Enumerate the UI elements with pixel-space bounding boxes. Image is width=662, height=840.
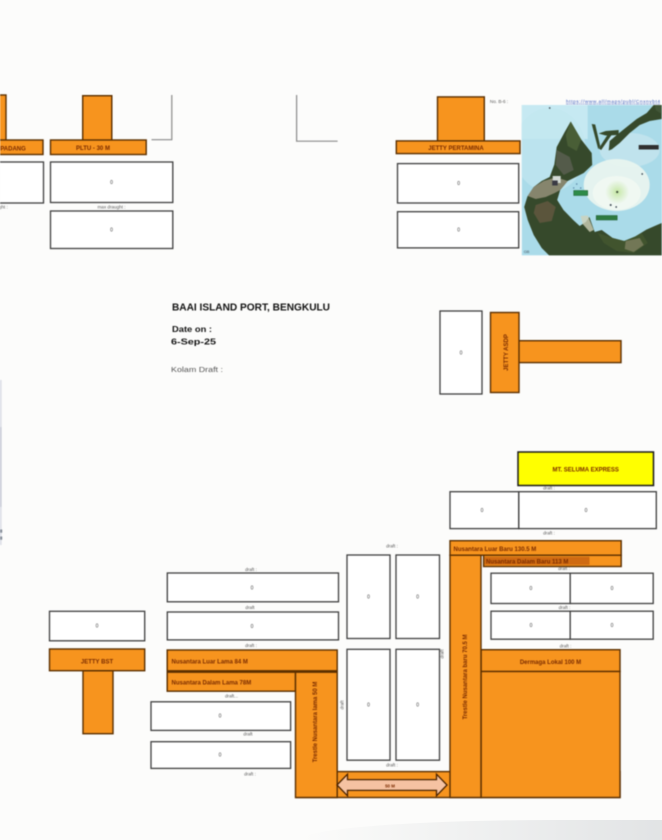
svg-text:No. B-6 :: No. B-6 :	[490, 99, 508, 104]
svg-text:0: 0	[611, 623, 614, 629]
svg-text:Dermaga Lokal 100 M: Dermaga Lokal 100 M	[520, 660, 581, 666]
svg-text:0: 0	[96, 624, 99, 630]
svg-text:0: 0	[460, 351, 463, 357]
svg-text:BAAI ISLAND PORT, BENGKULU: BAAI ISLAND PORT, BENGKULU	[172, 303, 330, 314]
svg-text:0: 0	[219, 714, 222, 720]
svg-text:50 M: 50 M	[385, 783, 395, 788]
svg-text:Kolam Draft :: Kolam Draft :	[171, 367, 223, 374]
svg-text:Nusantara Dalam Baru 113 M: Nusantara Dalam Baru 113 M	[486, 560, 568, 566]
svg-text:draft :: draft :	[245, 643, 257, 648]
svg-text:0: 0	[457, 181, 460, 187]
svg-text:0: 0	[110, 180, 113, 186]
svg-text:https://www.all/maps/publ/Cnxn: https://www.all/maps/publ/Cnxnvbt4	[566, 99, 660, 105]
svg-text:draft: draft	[440, 649, 445, 659]
svg-text:GB: GB	[524, 249, 530, 254]
svg-text:draft :: draft :	[386, 544, 398, 549]
svg-text:0: 0	[611, 586, 614, 592]
svg-text:draft :: draft :	[386, 763, 398, 768]
svg-text:draft: draft	[243, 732, 253, 737]
svg-text:draft: draft	[245, 605, 255, 610]
svg-text:0: 0	[481, 508, 484, 514]
svg-text:Nusantara Luar Baru 130.5 M: Nusantara Luar Baru 130.5 M	[454, 547, 537, 553]
svg-text:Trestle Nusantara lama 50 M: Trestle Nusantara lama 50 M	[313, 682, 319, 763]
svg-text:draft :: draft :	[543, 485, 555, 490]
svg-text:max draught :: max draught :	[97, 205, 125, 210]
svg-text:0: 0	[367, 703, 370, 709]
svg-text:MT. SELUMA EXPRESS: MT. SELUMA EXPRESS	[552, 467, 618, 473]
svg-text:draft :: draft :	[245, 567, 257, 572]
svg-text:Trestle Nusantara baru 70.5 M: Trestle Nusantara baru 70.5 M	[463, 634, 469, 719]
svg-text:JETTY PERTAMINA: JETTY PERTAMINA	[428, 146, 484, 152]
svg-text:0: 0	[110, 228, 113, 234]
svg-text:0: 0	[585, 508, 588, 514]
svg-text:draft :: draft :	[543, 531, 555, 536]
svg-text:0: 0	[457, 228, 460, 234]
svg-text:draft...: draft...	[225, 694, 238, 699]
svg-text:draft :: draft :	[560, 643, 572, 648]
svg-text:0: 0	[251, 586, 254, 592]
svg-text:PLTU - 30 M: PLTU - 30 M	[76, 146, 110, 152]
svg-text:draft :: draft :	[558, 566, 570, 571]
svg-text:Nusantara Luar Lama 84 M: Nusantara Luar Lama 84 M	[172, 660, 248, 666]
svg-text:draft :: draft :	[244, 772, 256, 777]
svg-text:Date on :: Date on :	[172, 325, 212, 334]
svg-text:Nusantara Dalam Lama 78M: Nusantara Dalam Lama 78M	[172, 681, 252, 687]
svg-text:0: 0	[251, 624, 254, 630]
svg-text:draft :: draft :	[559, 605, 571, 610]
svg-text:ught :: ught :	[0, 205, 8, 210]
svg-text:0: 0	[367, 595, 370, 601]
svg-text:draft: draft	[340, 700, 345, 710]
svg-text:0: 0	[530, 586, 533, 592]
svg-text:PADANG: PADANG	[0, 147, 26, 153]
svg-text:6-Sep-25: 6-Sep-25	[171, 338, 217, 347]
svg-text:JETTY BST: JETTY BST	[81, 660, 114, 666]
svg-text:0: 0	[530, 623, 533, 629]
svg-text:JETTY ASDP: JETTY ASDP	[504, 334, 510, 371]
svg-text:0: 0	[416, 703, 419, 709]
svg-text:0: 0	[219, 753, 222, 759]
svg-text:0: 0	[416, 595, 419, 601]
